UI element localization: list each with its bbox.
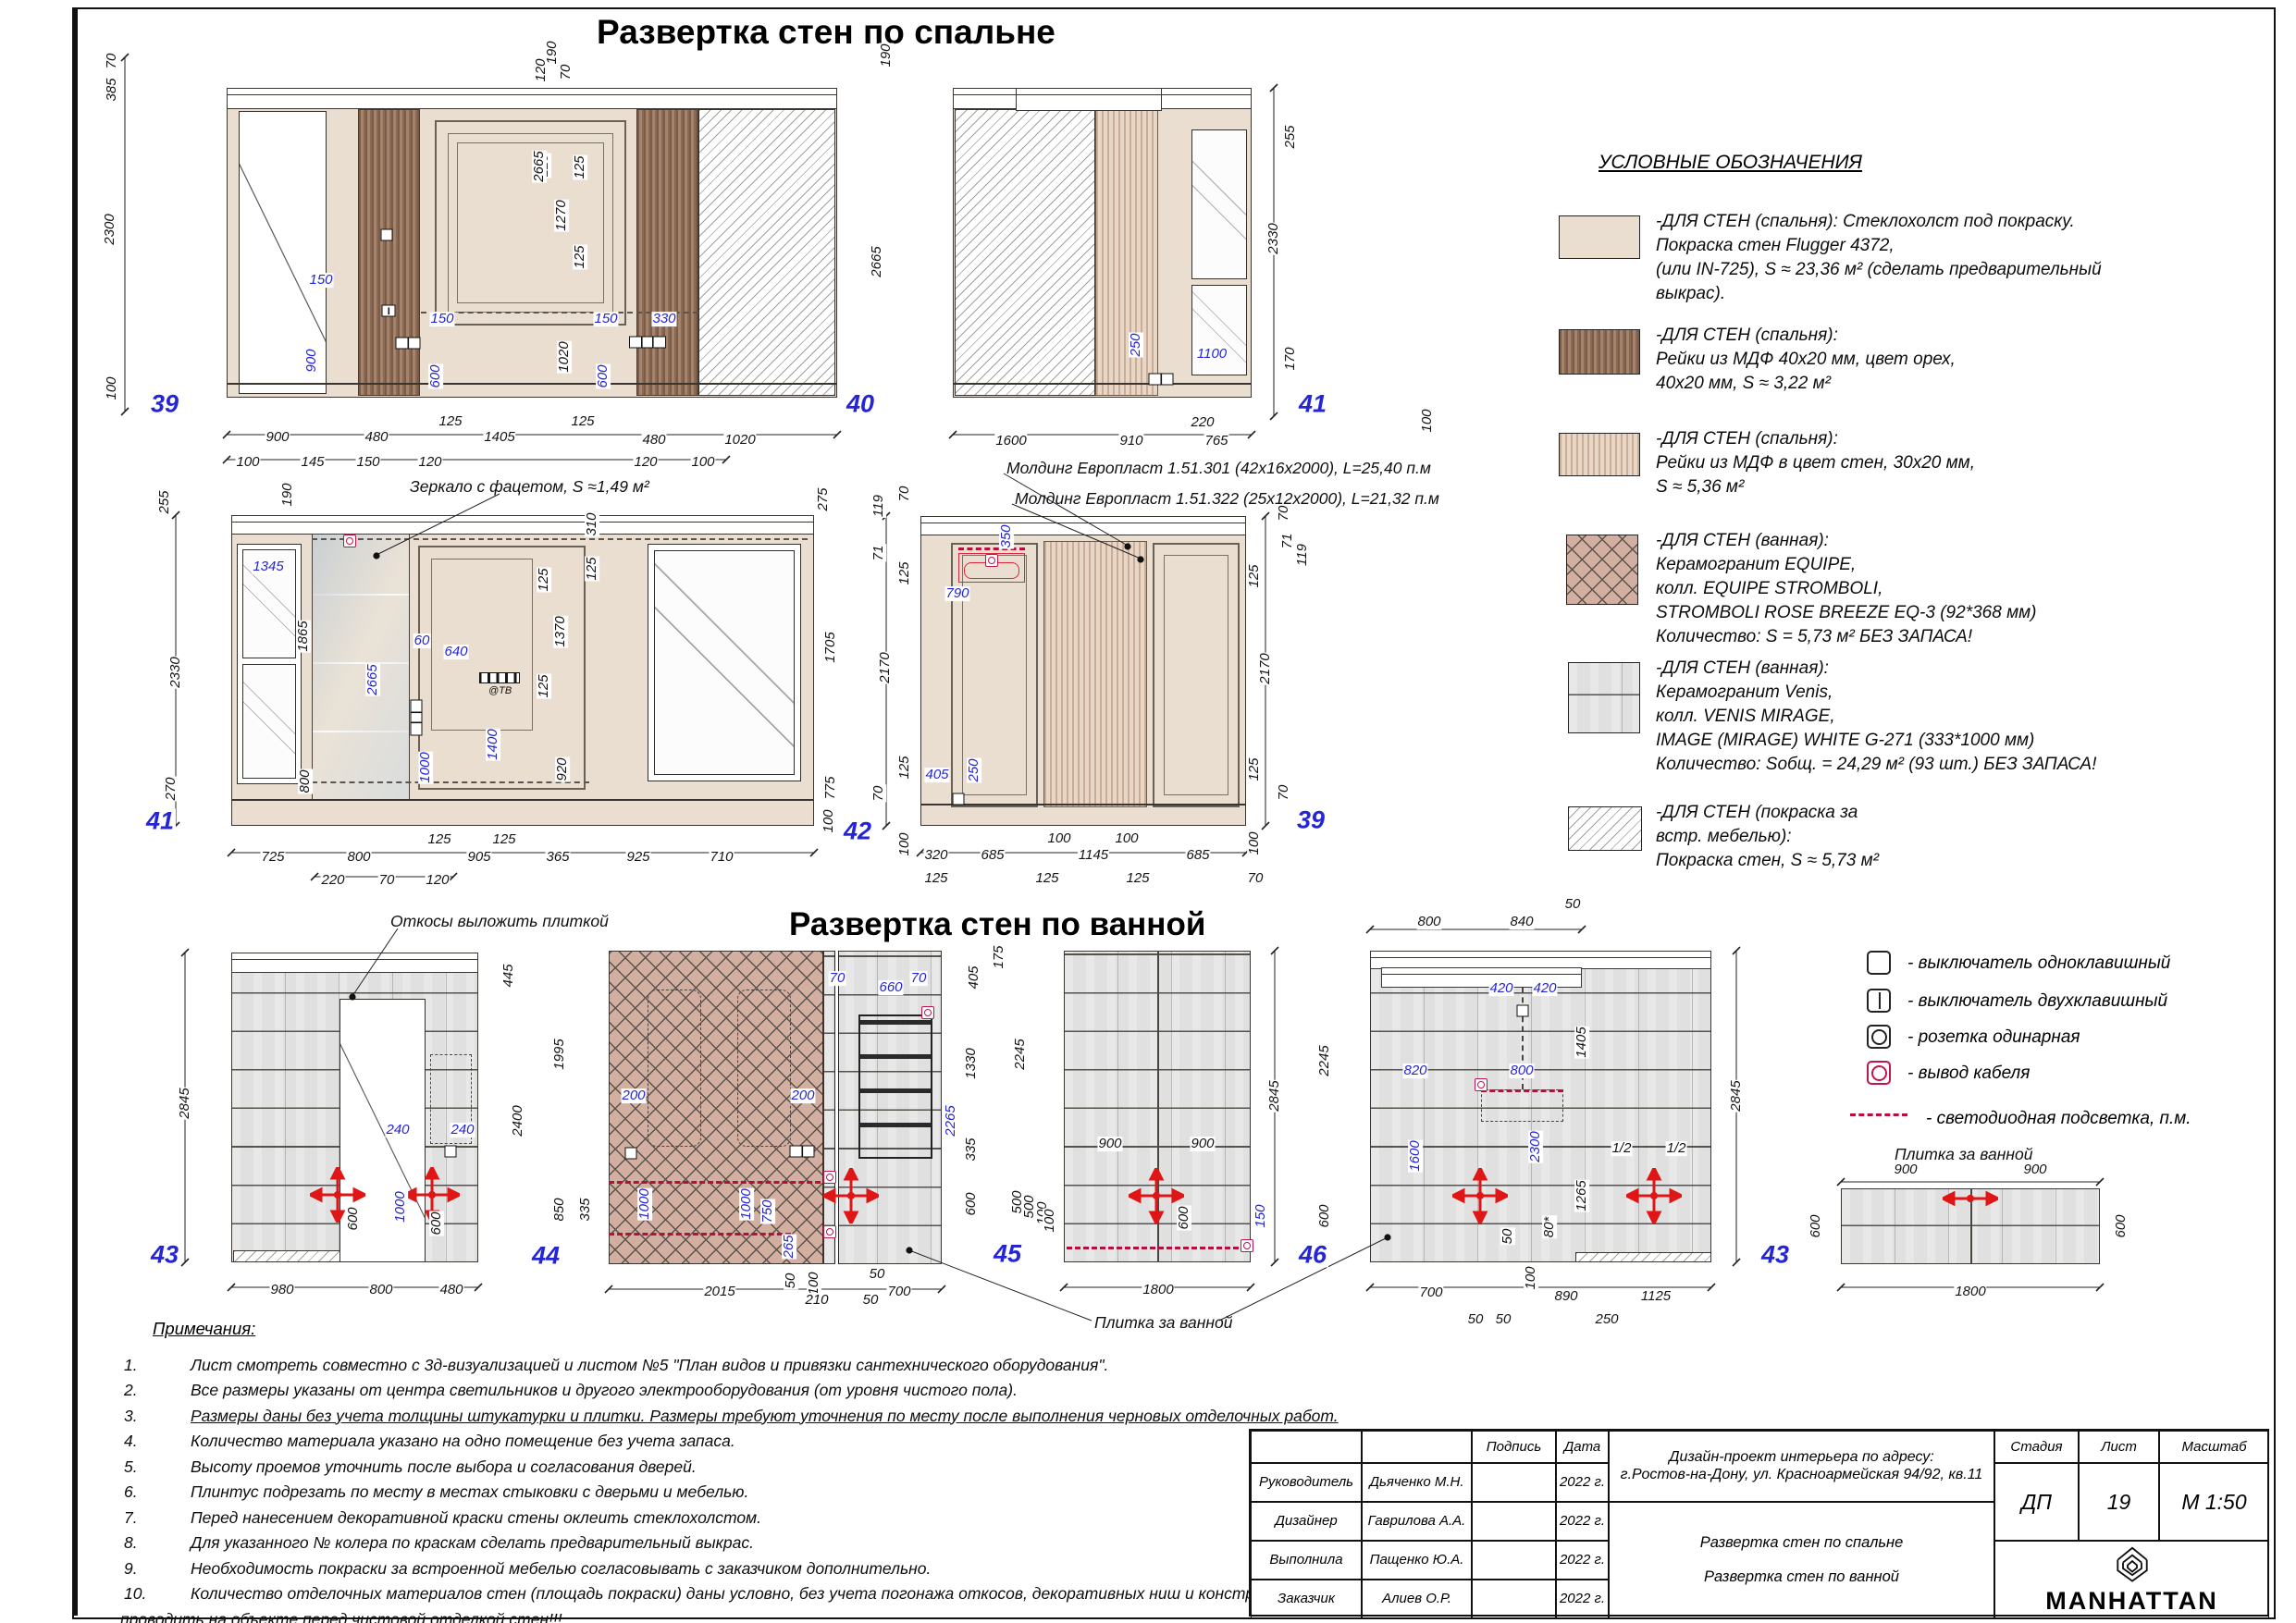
- dim-label-e42: 125: [1247, 563, 1262, 588]
- dim-label-e39: 190: [545, 40, 560, 65]
- dim-label-e44: 1000: [637, 1187, 652, 1220]
- dim-label-e46: 700: [1418, 1285, 1443, 1300]
- tb-sign-1: [1472, 1502, 1556, 1541]
- dim-label-e41: 640: [443, 645, 468, 659]
- dim-label-e45: 100: [1043, 1208, 1057, 1233]
- dashed-outline: [312, 538, 808, 540]
- dim-label-e40: 910: [1118, 434, 1143, 449]
- callout-tile-behind-bath: Плитка за ванной: [1094, 1313, 1232, 1333]
- dim-label-e45: 1800: [1142, 1283, 1174, 1297]
- elev41-plinth: [232, 799, 813, 801]
- dim-label-e43: 2845: [178, 1087, 192, 1119]
- dim-label-e46: 1125: [1640, 1289, 1672, 1304]
- callout-slopes: Откосы выложить плиткой: [390, 912, 609, 931]
- dim-label-e42: 405: [924, 768, 949, 782]
- dim-label-e39: 480: [641, 433, 666, 448]
- dim-label-e44: 1330: [964, 1047, 979, 1079]
- dim-label-e39: 1405: [483, 430, 515, 445]
- dim-label-e44: 335: [964, 1137, 979, 1162]
- dim-label-e44: 200: [621, 1088, 646, 1103]
- elev39-plinth: [228, 383, 836, 385]
- dim-label-e41: 2330: [168, 656, 183, 688]
- tb-sign-0: [1472, 1463, 1556, 1502]
- manhattan-logo-icon: [2112, 1545, 2153, 1586]
- legend-text-3: -ДЛЯ СТЕН (ванная):Керамогранит EQUIPE,к…: [1656, 529, 2036, 649]
- tb-role-3: Заказчик: [1251, 1580, 1362, 1618]
- view-number-39: 39: [1295, 808, 1327, 833]
- fixture-switch1: [381, 229, 393, 241]
- dim-label-e41: 710: [709, 850, 734, 865]
- light-fixture-marker: [1452, 1168, 1508, 1223]
- dim-label-e41: 775: [823, 775, 838, 800]
- page-title-bedroom: Развертка стен по спальне: [597, 15, 1055, 49]
- legend-text-4: -ДЛЯ СТЕН (ванная):Керамогранит Venis,ко…: [1656, 657, 2096, 777]
- dim-label-e46: 600: [1317, 1203, 1332, 1228]
- fixture-socket1: [445, 1146, 457, 1158]
- tb-header-stadia: Стадия: [1994, 1431, 2079, 1463]
- fixture-cable_r: [823, 1225, 836, 1238]
- fixture-socket1: [953, 793, 965, 805]
- fixture-cable_r: [343, 535, 356, 547]
- dim-label-e41: 920: [555, 756, 570, 781]
- led-strip-line: [958, 547, 1025, 550]
- dim-label-e43: 240: [450, 1123, 475, 1137]
- dim-label-e42: 685: [980, 848, 1005, 863]
- dim-label-e41: 905: [466, 850, 491, 865]
- dim-label-e42: 125: [1034, 871, 1059, 886]
- tb-project-line1: Дизайн-проект интерьера по адресу:: [1669, 1449, 1934, 1466]
- dim-label-e44: 70: [910, 971, 928, 986]
- dashed-outline: [1481, 1089, 1563, 1122]
- legend-swatch-walnut-slats: [1559, 329, 1640, 375]
- legend-heading: УСЛОВНЫЕ ОБОЗНАЧЕНИЯ: [1599, 153, 1862, 172]
- elev42-molding-inner-right: [1164, 555, 1228, 795]
- fixture-socket2: [396, 338, 421, 350]
- dim-label-e41: 725: [260, 850, 285, 865]
- dim-label-e39: 900: [304, 348, 319, 373]
- elev42-mdf-rails: [1043, 541, 1147, 807]
- dim-label-e39: 480: [364, 430, 389, 445]
- dim-label-e40: 190: [879, 43, 894, 68]
- dim-label-e41: 1705: [823, 631, 838, 663]
- fixture-switch2: [382, 305, 396, 317]
- dim-label-e42: 125: [1247, 756, 1262, 781]
- led-strip-icon: [1850, 1113, 1907, 1116]
- symbol-label: - выключатель двухклавишный: [1907, 992, 2167, 1010]
- elev39-hatch-wardrobe: [698, 109, 835, 396]
- legend-text-5: -ДЛЯ СТЕН (покраска завстр. мебелью):Пок…: [1656, 801, 1879, 873]
- tb-name-0: Дьяченко М.Н.: [1362, 1463, 1472, 1502]
- dim-label-e43: 800: [368, 1283, 393, 1297]
- dim-label-e46: 420: [1488, 981, 1513, 996]
- dim-label-e39: 600: [596, 363, 611, 388]
- dim-label-e42: 250: [967, 757, 981, 782]
- tb-header-data: Дата: [1556, 1431, 1609, 1463]
- dim-label-e39: 150: [355, 455, 380, 470]
- tb-name-3: Алиев О.Р.: [1362, 1580, 1472, 1618]
- dim-label-e46: 1405: [1574, 1026, 1589, 1058]
- view-number-40: 40: [845, 392, 876, 417]
- dim-label-e44: 265: [782, 1234, 796, 1259]
- dim-label-e41: 220: [320, 873, 345, 888]
- dim-label-e46: 1/2: [1611, 1141, 1633, 1156]
- tb-date-2: 2022 г.: [1556, 1541, 1609, 1580]
- fixture-socket3: [629, 337, 666, 349]
- dim-label-e40: 1100: [1196, 347, 1228, 362]
- led-strip-line: [609, 1181, 829, 1184]
- elev40-mirror-bottom: [1191, 285, 1247, 375]
- tb-empty2: [1362, 1431, 1472, 1463]
- dim-label-e42: 2170: [1258, 652, 1273, 684]
- dim-label-e42: 2170: [878, 651, 893, 683]
- elev46-ceiling-band: [1370, 951, 1711, 969]
- dim-label-e46: 50: [1495, 1312, 1512, 1327]
- title-block: Подпись Дата Руководитель Дьяченко М.Н. …: [1249, 1429, 2269, 1617]
- dim-label-e46: 50: [1564, 897, 1582, 912]
- view-number-46: 46: [1297, 1243, 1328, 1268]
- elev39-walnut-slats-left: [358, 109, 420, 396]
- dim-label-e39: 100: [690, 455, 715, 470]
- dim-label-e41: 1000: [418, 751, 433, 783]
- dim-label-e41: 270: [164, 776, 179, 801]
- dim-label-e39: 150: [429, 312, 454, 326]
- dim-label-e43: 445: [501, 963, 516, 988]
- tb-logo-cell: MANHATTAN: [1994, 1541, 2269, 1618]
- view-number-43: 43: [1759, 1243, 1791, 1268]
- legend-text-2: -ДЛЯ СТЕН (спальня):Рейки из МДФ в цвет …: [1656, 427, 1975, 499]
- symbol-label: - розетка одинарная: [1907, 1028, 2080, 1046]
- dim-label-e46: 840: [1509, 915, 1534, 929]
- legend-swatch-wall-color-slats: [1559, 433, 1640, 476]
- dim-label-e42: 70: [1277, 784, 1291, 802]
- dim-label-e42: 125: [897, 755, 912, 780]
- dim-label-e42: 790: [944, 586, 969, 601]
- tb-subtitle1: Развертка стен по спальне: [1700, 1534, 1904, 1552]
- callout-tv: @ТВ: [488, 686, 512, 696]
- tb-masshtab-value: М 1:50: [2159, 1463, 2269, 1541]
- dim-label-e44: 70: [829, 971, 846, 986]
- dim-label-e44: 750: [760, 1199, 775, 1223]
- callout-molding1: Молдинг Европласт 1.51.301 (42х16х2000),…: [1006, 459, 1431, 478]
- fixture-socket2: [790, 1146, 815, 1158]
- dim-label-e41: 1370: [553, 615, 568, 647]
- dim-label-e39: 150: [593, 312, 618, 326]
- elev39-ceiling-band: [227, 88, 837, 109]
- elev46-floor-hatch: [1575, 1252, 1711, 1262]
- fixture-stack3: [411, 700, 423, 736]
- dim-label-e43: 600: [346, 1206, 361, 1231]
- view-number-41: 41: [144, 809, 176, 834]
- dim-label-e40: 765: [1204, 434, 1228, 449]
- elev40-plinth: [954, 383, 1251, 385]
- dim-label-e42: 100: [1046, 831, 1071, 846]
- tb-header-masshtab: Масштаб: [2159, 1431, 2269, 1463]
- dim-label-e46: 1/2: [1666, 1141, 1687, 1156]
- tb-project: Дизайн-проект интерьера по адресу: г.Рос…: [1609, 1431, 1994, 1502]
- elev41-ceiling-band: [231, 515, 814, 535]
- dim-label-e41: 1865: [296, 620, 311, 652]
- dim-label-e44: 600: [964, 1191, 979, 1216]
- dim-label-e43: 980: [269, 1283, 294, 1297]
- dim-label-e46: 50: [1467, 1312, 1485, 1327]
- dim-label-e43: 1000: [393, 1190, 408, 1223]
- dim-label-e44: 2015: [703, 1285, 735, 1299]
- dim-label-e45: 900: [1190, 1137, 1215, 1151]
- dim-label-e39: 150: [308, 273, 333, 288]
- dim-label-e46: 1600: [1408, 1139, 1423, 1172]
- tb-role-2: Выполнила: [1251, 1541, 1362, 1580]
- dim-label-e41: 70: [378, 873, 396, 888]
- dim-label-e39: 100: [105, 375, 119, 400]
- dashed-outline: [648, 990, 701, 1147]
- tb-subtitle2: Развертка стен по ванной: [1704, 1568, 1899, 1586]
- fixture-cable_r: [921, 1006, 934, 1019]
- drawing-sheet: Развертка стен по спальне Развертка стен…: [0, 0, 2296, 1623]
- cable-outlet-icon: [1867, 1061, 1891, 1085]
- note-item-2: 2.Все размеры указаны от центра светильн…: [120, 1378, 1508, 1404]
- dim-label-e46: 2845: [1729, 1079, 1744, 1112]
- dim-label-e46: 820: [1402, 1064, 1427, 1078]
- elev40-cornice: [1016, 88, 1162, 111]
- led-strip-line: [1067, 1247, 1247, 1249]
- dim-label-e42: 125: [1125, 871, 1150, 886]
- elev40-mirror-top: [1191, 129, 1247, 279]
- dim-label-e43: 480: [438, 1283, 463, 1297]
- elev43-floor-hatch: [233, 1250, 340, 1262]
- dim-label-e42: 70: [871, 785, 886, 803]
- dim-label-e42: 125: [897, 560, 912, 585]
- dim-label-e41: 190: [280, 482, 295, 507]
- dim-label-e42: 125: [923, 871, 948, 886]
- dim-label-e41: 365: [545, 850, 570, 865]
- light-fixture-marker: [823, 1168, 879, 1223]
- dim-label-e44: 175: [992, 944, 1006, 969]
- tb-name-2: Пащенко Ю.А.: [1362, 1541, 1472, 1580]
- dim-label-e46: 50: [1500, 1228, 1515, 1246]
- dim-label-e41: 125: [491, 832, 516, 847]
- dim-label-e39: 70: [559, 64, 574, 81]
- dim-label-e44: 50: [869, 1267, 886, 1282]
- dim-label-e42: 119: [871, 494, 886, 518]
- dim-label-e40: 170: [1283, 346, 1298, 371]
- socket-single-icon: [1867, 1025, 1891, 1049]
- dim-label-e42: 350: [999, 523, 1014, 548]
- dim-label-e44: 200: [790, 1088, 815, 1103]
- led-strip-line: [609, 1233, 791, 1236]
- dim-label-e46: 800: [1416, 915, 1441, 929]
- fixture-cable_r: [985, 554, 998, 567]
- callout-mirror: Зеркало с фацетом, S ≈1,49 м²: [410, 477, 649, 497]
- dim-label-e43: 2400: [511, 1104, 525, 1137]
- dim-label-e46: 1265: [1574, 1179, 1589, 1211]
- light-fixture-marker: [1626, 1168, 1682, 1223]
- dim-label-e39: 125: [438, 414, 463, 429]
- symbol-label: - выключатель одноклавишный: [1907, 954, 2170, 972]
- dim-label-e42: 1145: [1078, 848, 1109, 863]
- dim-label-e40: 2665: [870, 245, 884, 277]
- dim-label-e42: 70: [897, 486, 912, 503]
- legend-text-1: -ДЛЯ СТЕН (спальня):Рейки из МДФ 40х20 м…: [1656, 324, 1956, 396]
- dim-label-e42: 70: [1247, 871, 1265, 886]
- tb-role-1: Дизайнер: [1251, 1502, 1362, 1541]
- dim-label-e40: 250: [1129, 332, 1143, 357]
- dim-label-e39: 120: [417, 455, 442, 470]
- tb-date-1: 2022 г.: [1556, 1502, 1609, 1541]
- dim-label-e41: 125: [585, 556, 599, 581]
- elev40-mdf-rails: [1095, 109, 1158, 396]
- view-number-44: 44: [530, 1244, 562, 1269]
- dim-label-e41: 125: [537, 567, 551, 592]
- dim-label-e44: 210: [804, 1293, 829, 1308]
- dim-label-e39: 70: [105, 53, 119, 70]
- dim-label-e46: 420: [1532, 981, 1557, 996]
- dim-label-e42: 685: [1185, 848, 1210, 863]
- dim-label-e44: 50: [862, 1293, 880, 1308]
- dim-label-e44: 700: [886, 1285, 911, 1299]
- dim-label-e39: 330: [651, 312, 676, 326]
- tb-date-3: 2022 г.: [1556, 1580, 1609, 1618]
- dim-label-e39: 2665: [532, 150, 547, 182]
- dim-label-e41: 100: [821, 808, 836, 833]
- callout-molding2: Молдинг Европласт 1.51.322 (25х12х2000),…: [1015, 489, 1439, 509]
- notes-heading: Примечания:: [153, 1321, 1508, 1338]
- dim-label-e40: 1600: [994, 434, 1027, 449]
- dim-label-e39: 125: [573, 154, 587, 179]
- dim-label-e46: 800: [1509, 1064, 1534, 1078]
- tb-role-0: Руководитель: [1251, 1463, 1362, 1502]
- note-item-1: 1.Лист смотреть совместно с 3д-визуализа…: [120, 1353, 1508, 1379]
- dim-label-e43: 240: [385, 1123, 410, 1137]
- tb-name-1: Гаврилова А.А.: [1362, 1502, 1472, 1541]
- dim-label-e43: 600: [429, 1211, 444, 1236]
- elev42-plinth: [921, 804, 1245, 805]
- dim-label-e44: 405: [967, 965, 981, 990]
- dim-label-e39: 1020: [557, 340, 572, 373]
- tile-behind-bath-title: Плитка за ванной: [1895, 1145, 2032, 1164]
- fixture-socket1: [625, 1148, 637, 1160]
- dim-label-e44: 2245: [1013, 1038, 1028, 1070]
- dim-label-e42: 100: [897, 831, 912, 856]
- tb-sign-3: [1472, 1580, 1556, 1618]
- dashed-outline: [737, 990, 791, 1147]
- symbol-label: - светодиодная подсветка, п.м.: [1926, 1110, 2191, 1127]
- elev41-mirror-column: [312, 534, 410, 800]
- tb-header-list: Лист: [2079, 1431, 2159, 1463]
- dashed-outline: [312, 781, 589, 783]
- view-number-43: 43: [149, 1243, 180, 1268]
- dim-label-e40: 220: [1190, 415, 1215, 430]
- legend-swatch-paint-beige: [1559, 215, 1640, 259]
- dim-label-e41: 2665: [365, 663, 380, 695]
- legend-swatch-herringbone-tile: [1566, 535, 1638, 605]
- dim-label-e46: 2245: [1317, 1044, 1332, 1076]
- dim-label-e44: 50: [784, 1273, 798, 1290]
- binding-edge: [72, 7, 78, 1616]
- dim-label-e42: 119: [1295, 543, 1310, 567]
- dim-label-e44: 660: [878, 980, 903, 995]
- dim-label-e41: 800: [298, 768, 313, 793]
- view-number-45: 45: [992, 1242, 1023, 1267]
- dim-label-e41: 1345: [252, 559, 284, 574]
- fixture-cable_r: [1241, 1239, 1253, 1252]
- switch-single-icon: [1867, 951, 1891, 975]
- tb-stadia-value: ДП: [1994, 1463, 2079, 1541]
- elev41-window-pane3: [654, 550, 795, 775]
- page-title-bathroom: Развертка стен по ванной: [789, 908, 1205, 941]
- elev39-walnut-slats-right: [636, 109, 698, 396]
- dim-label-e41: 125: [537, 673, 551, 698]
- dim-label-e39: 125: [570, 414, 595, 429]
- dim-label-e41: 125: [426, 832, 451, 847]
- tb-project-line2: г.Ростов-на-Дону, ул. Красноармейская 94…: [1621, 1467, 1983, 1483]
- symbol-label: - вывод кабеля: [1907, 1064, 2030, 1082]
- dim-label-e42: 100: [1114, 831, 1139, 846]
- dim-label-e46: 250: [1594, 1312, 1619, 1327]
- elev43-ceiling-band: [231, 953, 478, 973]
- legend-swatch-gray-tile: [1568, 662, 1640, 733]
- dim-label-e42: 100: [1247, 830, 1262, 855]
- dim-label-e41: 925: [625, 850, 650, 865]
- fixture-socket2: [1149, 374, 1174, 386]
- dim-label-e42: 71: [1280, 533, 1295, 550]
- dim-label-e39: 385: [105, 77, 119, 102]
- dim-label-tile: 600: [2114, 1213, 2129, 1238]
- fixture-cable_r: [1475, 1078, 1487, 1091]
- dim-label-e40: 255: [1283, 124, 1298, 149]
- dim-label-e39: 600: [428, 363, 443, 388]
- dim-label-e45: 150: [1253, 1203, 1268, 1228]
- light-fixture-marker: [1943, 1171, 1998, 1226]
- view-number-41: 41: [1297, 392, 1328, 417]
- dim-label-e44: 2265: [944, 1104, 958, 1137]
- tb-list-value: 19: [2079, 1463, 2159, 1541]
- dim-label-e39: 1020: [723, 433, 756, 448]
- tb-empty1: [1251, 1431, 1362, 1463]
- elev44-towel-radiator: [858, 1014, 932, 1159]
- dim-label-e44: 850: [552, 1197, 567, 1222]
- legend-text-0: -ДЛЯ СТЕН (спальня): Стеклохолст под пок…: [1656, 210, 2102, 306]
- view-number-39: 39: [149, 392, 180, 417]
- dim-label-e41: 120: [425, 873, 450, 888]
- elev41-window-pane2: [242, 664, 296, 779]
- dim-label-e46: 80*: [1542, 1216, 1557, 1239]
- tb-date-0: 2022 г.: [1556, 1463, 1609, 1502]
- elev42-ceiling-band: [920, 516, 1246, 535]
- dim-label-e45: 900: [1097, 1137, 1122, 1151]
- manhattan-logo-text: MANHATTAN: [2045, 1589, 2217, 1614]
- dim-label-e42: 71: [871, 545, 886, 562]
- dim-label-e40: 100: [1420, 408, 1435, 433]
- switch-double-icon: [1867, 989, 1891, 1013]
- dim-label-e39: 145: [300, 455, 325, 470]
- dim-label-e39: 2300: [103, 213, 117, 245]
- dim-label-e45: 500: [1022, 1194, 1037, 1219]
- note-item-3: 3.Размеры даны без учета толщины штукату…: [120, 1404, 1508, 1430]
- dim-label-e46: 2300: [1528, 1130, 1543, 1162]
- dim-label-e44: 1995: [552, 1038, 567, 1070]
- dim-label-e44: 335: [578, 1197, 593, 1222]
- dim-label-e40: 2330: [1266, 222, 1281, 254]
- dim-label-e44: 1000: [739, 1187, 754, 1220]
- dim-label-tile: 900: [1893, 1162, 1918, 1177]
- dim-label-e41: 1400: [486, 728, 500, 760]
- dim-label-e41: 275: [816, 486, 831, 511]
- dim-label-e39: 100: [235, 455, 260, 470]
- dim-label-e46: 890: [1553, 1289, 1578, 1304]
- fixture-socket1: [1517, 1005, 1529, 1017]
- fixture-tv4: [479, 672, 520, 683]
- dim-label-e39: 125: [573, 244, 587, 269]
